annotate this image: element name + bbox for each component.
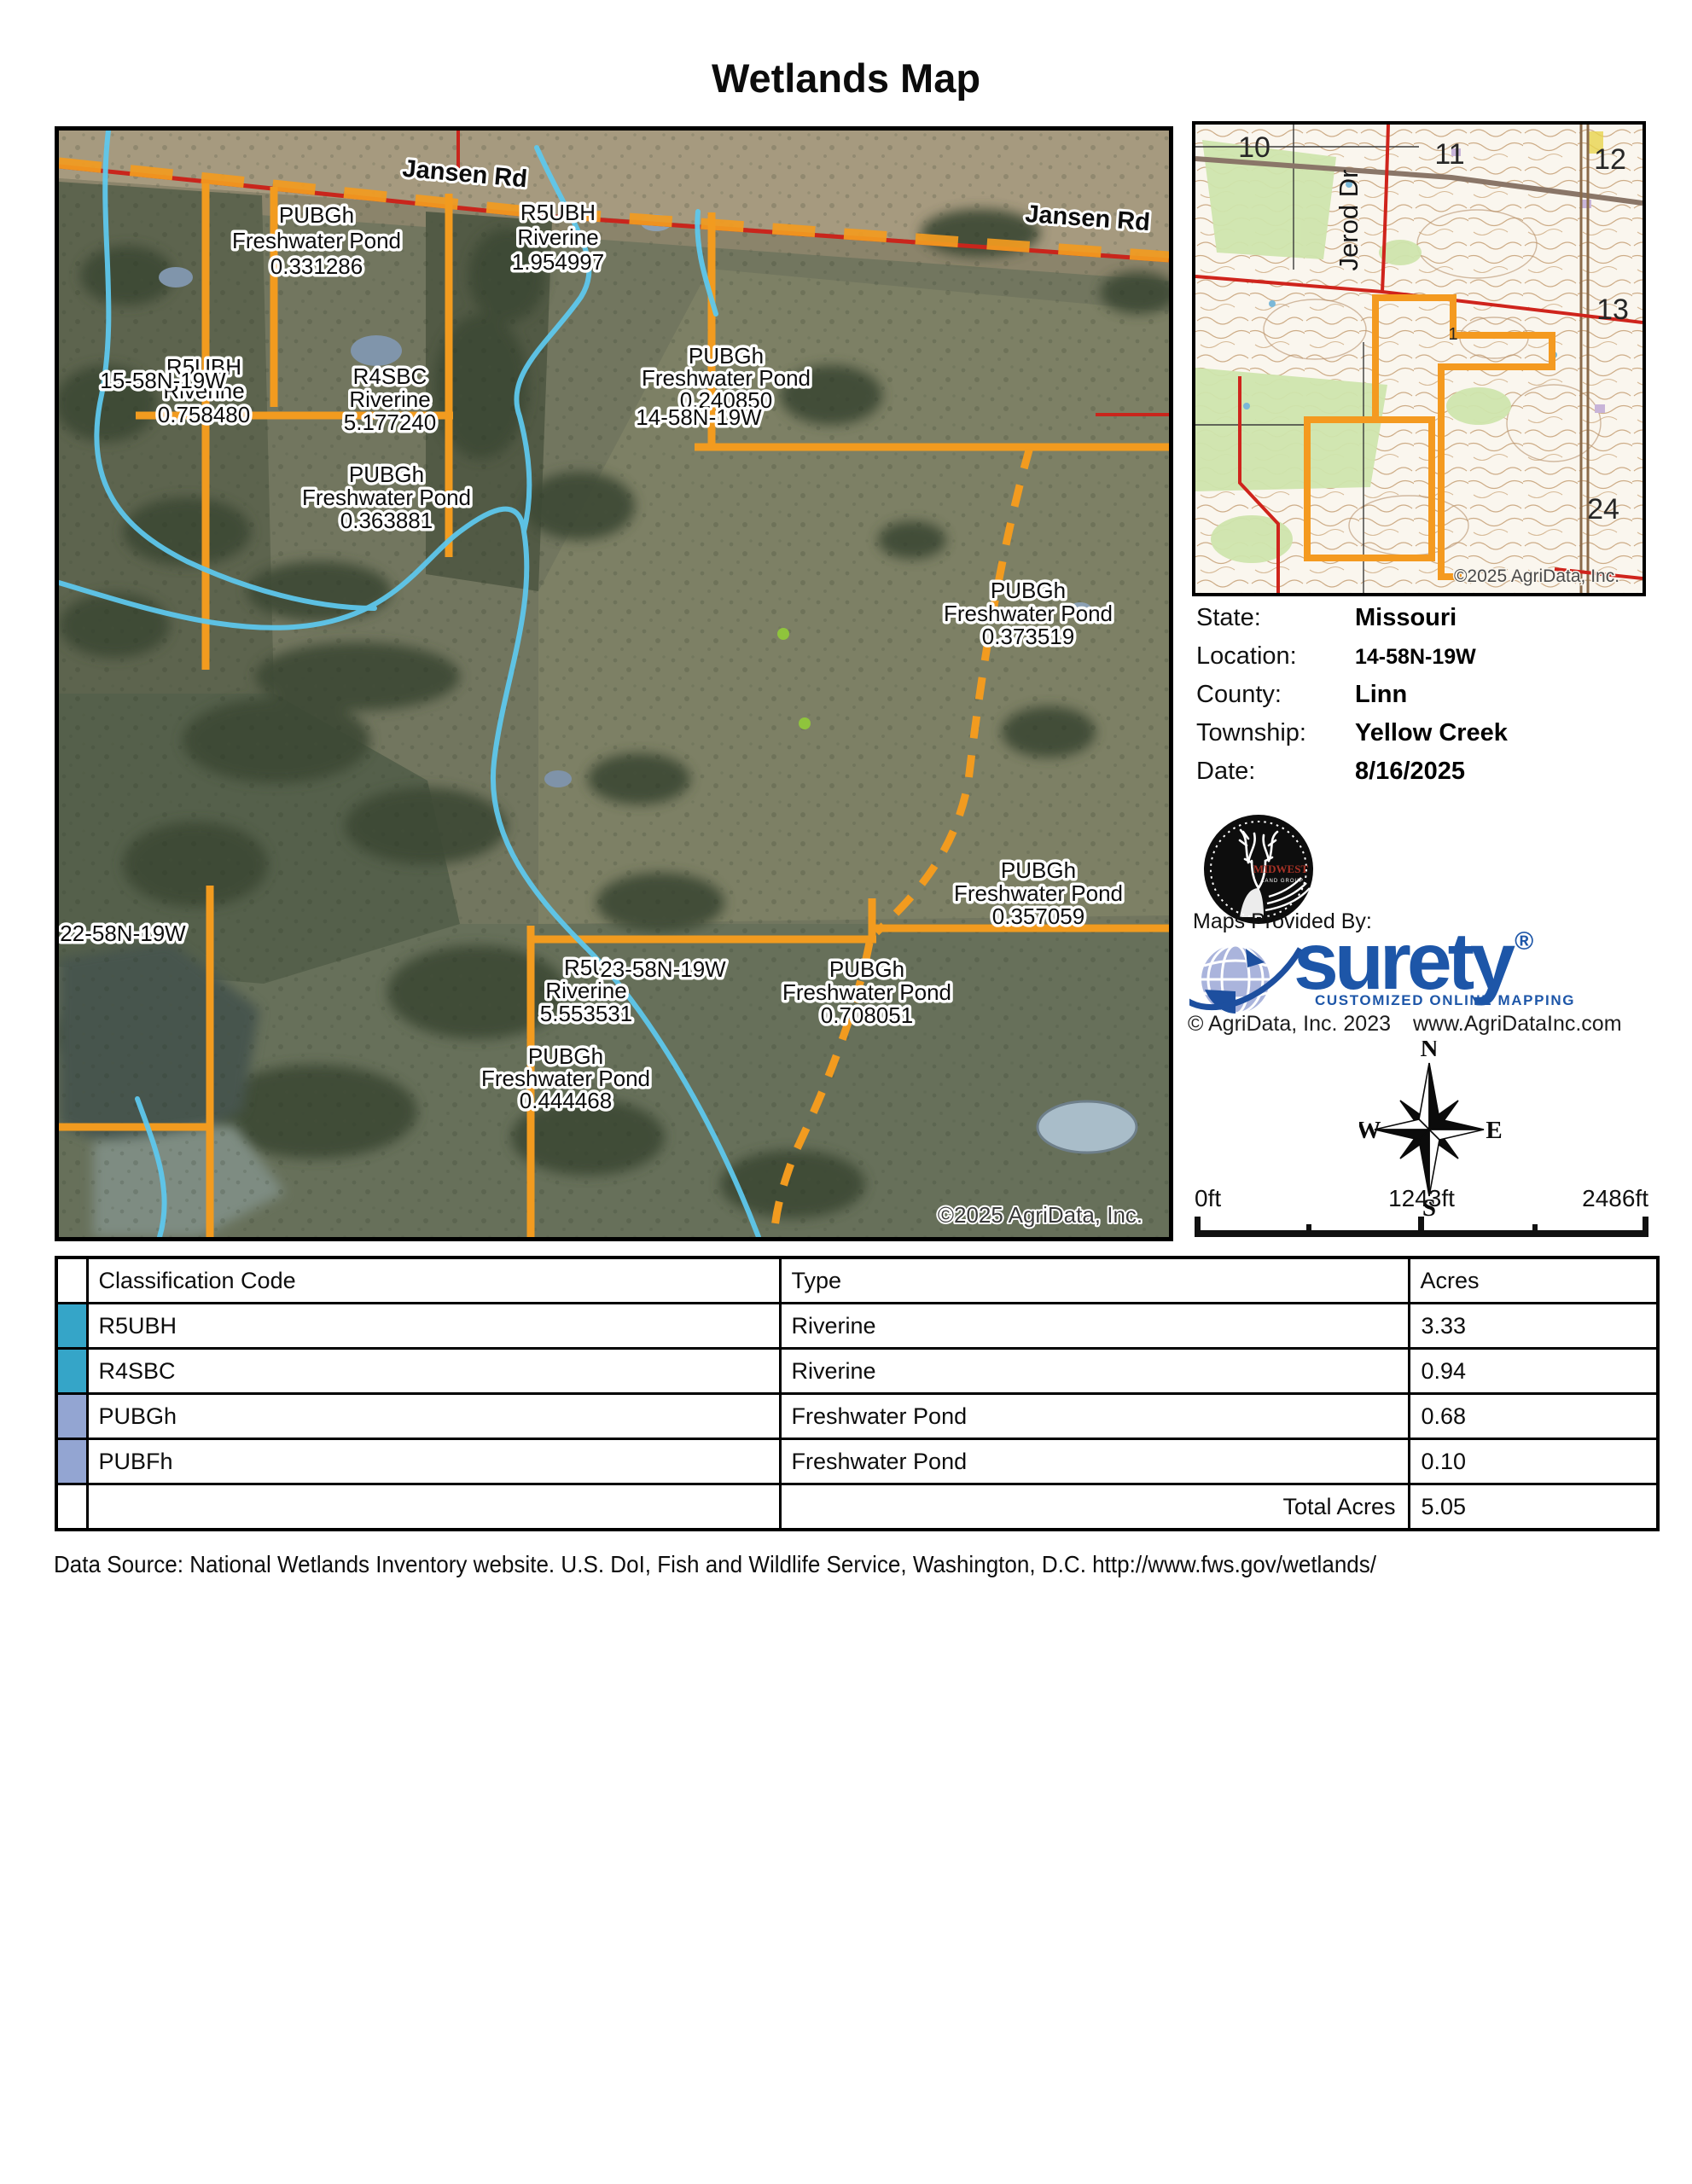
info-row-county: County:Linn	[1196, 681, 1407, 709]
compass-north-label: N	[1421, 1041, 1439, 1062]
classification-code-cell: R5UBH	[87, 1304, 780, 1349]
map-label: 23-58N-19W	[600, 956, 726, 982]
agridata-website-link[interactable]: www.AgriDataInc.com	[1413, 1012, 1622, 1037]
info-row-date: Date:8/16/2025	[1196, 758, 1465, 786]
map-scale-bar: 0ft 1243ft 2486ft	[1193, 1184, 1650, 1244]
locator-label: 11	[1434, 138, 1464, 171]
wetlands-classification-table: Classification Code Type Acres R5UBHRive…	[55, 1256, 1660, 1531]
legend-swatch	[56, 1439, 87, 1484]
township-label: Township:	[1196, 719, 1355, 747]
scale-bar-rule	[1195, 1217, 1648, 1237]
map-label: ©2025 AgriData, Inc.	[938, 1202, 1143, 1228]
table-row: PUBFhFreshwater Pond0.10	[56, 1439, 1658, 1484]
aerial-map-canvas: Jansen RdJansen RdPUBGhFreshwater Pond0.…	[59, 131, 1169, 1237]
type-cell: Freshwater Pond	[780, 1439, 1409, 1484]
total-acres-value: 5.05	[1409, 1484, 1658, 1531]
agridata-copyright: © AgriData, Inc. 2023	[1188, 1012, 1391, 1036]
compass-star-icon	[1375, 1063, 1484, 1196]
scale-zero-label: 0ft	[1195, 1185, 1221, 1211]
col-header-acres: Acres	[1409, 1258, 1658, 1304]
location-value: 14-58N-19W	[1355, 645, 1476, 669]
locator-label: 10	[1238, 131, 1270, 164]
classification-code-cell: PUBFh	[87, 1439, 780, 1484]
locator-label: ©2025 AgriData, Inc.	[1454, 566, 1619, 586]
info-row-township: Township:Yellow Creek	[1196, 719, 1508, 747]
table-row: PUBGhFreshwater Pond0.68	[56, 1394, 1658, 1439]
scale-end-label: 2486ft	[1582, 1185, 1648, 1211]
classification-code-cell: PUBGh	[87, 1394, 780, 1439]
scale-mid-label: 1243ft	[1388, 1185, 1455, 1211]
total-spacer-cell	[87, 1484, 780, 1531]
locator-label: 24	[1587, 493, 1619, 526]
date-label: Date:	[1196, 758, 1355, 786]
legend-swatch	[56, 1304, 87, 1349]
locator-label: 13	[1596, 293, 1629, 326]
date-value: 8/16/2025	[1355, 758, 1465, 785]
table-header-row: Classification Code Type Acres	[56, 1258, 1658, 1304]
page-title: Wetlands Map	[0, 55, 1692, 102]
county-label: County:	[1196, 681, 1355, 709]
wetlands-report-page: Wetlands Map	[0, 0, 1692, 2184]
classification-code-cell: R4SBC	[87, 1349, 780, 1394]
legend-swatch	[56, 1484, 87, 1531]
surety-tagline: CUSTOMIZED ONLINE MAPPING	[1315, 992, 1575, 1009]
table-total-row: Total Acres 5.05	[56, 1484, 1658, 1531]
wetlands-aerial-map[interactable]: Jansen RdJansen RdPUBGhFreshwater Pond0.…	[55, 126, 1173, 1241]
legend-swatch	[56, 1258, 87, 1304]
compass-west-label: W	[1359, 1117, 1381, 1144]
locator-canvas: 10111213241Jerod Dr©2025 AgriData, Inc.	[1195, 125, 1643, 593]
col-header-type: Type	[780, 1258, 1409, 1304]
agridata-credit-line: © AgriData, Inc. 2023 www.AgriDataInc.co…	[1188, 1012, 1648, 1037]
registered-mark: ®	[1515, 927, 1533, 955]
locator-label: 1	[1448, 325, 1457, 344]
surety-wordmark: surety®	[1294, 921, 1533, 1002]
map-label: 14-58N-19W	[636, 404, 762, 430]
surety-globe-icon	[1189, 937, 1305, 1022]
location-label: Location:	[1196, 642, 1355, 671]
acres-cell: 0.68	[1409, 1394, 1658, 1439]
state-value: Missouri	[1355, 604, 1457, 631]
data-source-footnote: Data Source: National Wetlands Inventory…	[54, 1551, 1376, 1578]
acres-cell: 0.10	[1409, 1439, 1658, 1484]
locator-label: Jerod Dr	[1334, 170, 1363, 271]
legend-swatch	[56, 1394, 87, 1439]
col-header-classification: Classification Code	[87, 1258, 780, 1304]
county-value: Linn	[1355, 681, 1407, 708]
locator-topo-map[interactable]: 10111213241Jerod Dr©2025 AgriData, Inc.	[1192, 121, 1646, 596]
type-cell: Riverine	[780, 1304, 1409, 1349]
locator-label: 12	[1594, 143, 1626, 176]
state-label: State:	[1196, 604, 1355, 632]
legend-swatch	[56, 1349, 87, 1394]
map-label: R5UBHRiverine1.954997	[512, 200, 604, 275]
type-cell: Freshwater Pond	[780, 1394, 1409, 1439]
map-label: 15-58N-19W	[100, 368, 226, 393]
township-value: Yellow Creek	[1355, 719, 1508, 746]
map-label: R4SBCRiverine5.177240	[344, 363, 436, 435]
info-row-location: Location:14-58N-19W	[1196, 642, 1476, 671]
midwest-wordmark: MIDWEST	[1253, 863, 1309, 875]
acres-cell: 3.33	[1409, 1304, 1658, 1349]
compass-east-label: E	[1486, 1117, 1502, 1144]
table-row: R5UBHRiverine3.33	[56, 1304, 1658, 1349]
table-row: R4SBCRiverine0.94	[56, 1349, 1658, 1394]
type-cell: Riverine	[780, 1349, 1409, 1394]
total-acres-label: Total Acres	[780, 1484, 1409, 1531]
map-label: 22-58N-19W	[60, 921, 186, 946]
info-row-state: State:Missouri	[1196, 604, 1457, 632]
acres-cell: 0.94	[1409, 1349, 1658, 1394]
